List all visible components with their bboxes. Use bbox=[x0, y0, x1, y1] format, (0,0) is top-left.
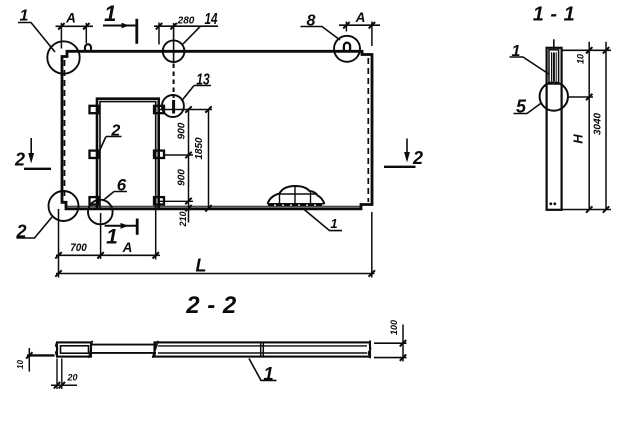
svg-text:700: 700 bbox=[70, 242, 87, 254]
svg-text:L: L bbox=[196, 256, 207, 276]
svg-text:A: A bbox=[355, 10, 366, 25]
svg-text:8: 8 bbox=[307, 12, 316, 29]
svg-text:3040: 3040 bbox=[592, 112, 603, 135]
svg-text:2: 2 bbox=[14, 150, 25, 170]
svg-text:13: 13 bbox=[196, 72, 210, 89]
svg-text:900: 900 bbox=[176, 169, 187, 186]
svg-text:900: 900 bbox=[176, 122, 187, 139]
svg-text:6: 6 bbox=[117, 176, 127, 195]
svg-text:1850: 1850 bbox=[194, 137, 205, 160]
svg-text:10: 10 bbox=[16, 360, 25, 369]
svg-text:100: 100 bbox=[389, 320, 399, 335]
svg-text:210: 210 bbox=[178, 211, 188, 227]
svg-text:H: H bbox=[571, 134, 586, 144]
svg-text:1: 1 bbox=[512, 43, 521, 60]
svg-text:5: 5 bbox=[516, 97, 527, 117]
svg-text:1: 1 bbox=[330, 216, 337, 231]
svg-text:20: 20 bbox=[66, 373, 77, 383]
svg-text:14: 14 bbox=[205, 11, 218, 28]
svg-text:1 - 1: 1 - 1 bbox=[533, 4, 576, 26]
svg-text:1: 1 bbox=[104, 1, 116, 26]
svg-text:10: 10 bbox=[576, 54, 586, 64]
svg-text:2: 2 bbox=[15, 221, 26, 241]
svg-text:2: 2 bbox=[412, 148, 423, 168]
svg-text:1: 1 bbox=[106, 226, 118, 249]
svg-text:1: 1 bbox=[20, 8, 29, 25]
svg-text:2 - 2: 2 - 2 bbox=[185, 292, 237, 319]
svg-text:280: 280 bbox=[177, 16, 195, 27]
svg-text:1: 1 bbox=[263, 363, 273, 384]
svg-text:A: A bbox=[122, 240, 133, 255]
svg-text:2: 2 bbox=[110, 122, 120, 139]
svg-text:A: A bbox=[65, 11, 76, 26]
